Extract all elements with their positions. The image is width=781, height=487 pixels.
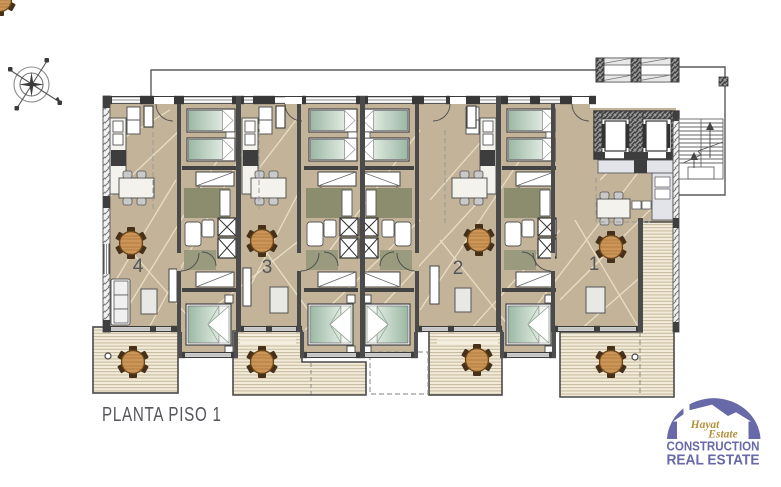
svg-text:REAL ESTATE: REAL ESTATE bbox=[667, 452, 760, 469]
svg-text:3: 3 bbox=[262, 257, 273, 278]
svg-text:2: 2 bbox=[453, 258, 464, 279]
svg-text:4: 4 bbox=[133, 256, 144, 277]
svg-text:1: 1 bbox=[589, 254, 600, 275]
svg-text:PLANTA PISO 1: PLANTA PISO 1 bbox=[102, 403, 222, 426]
